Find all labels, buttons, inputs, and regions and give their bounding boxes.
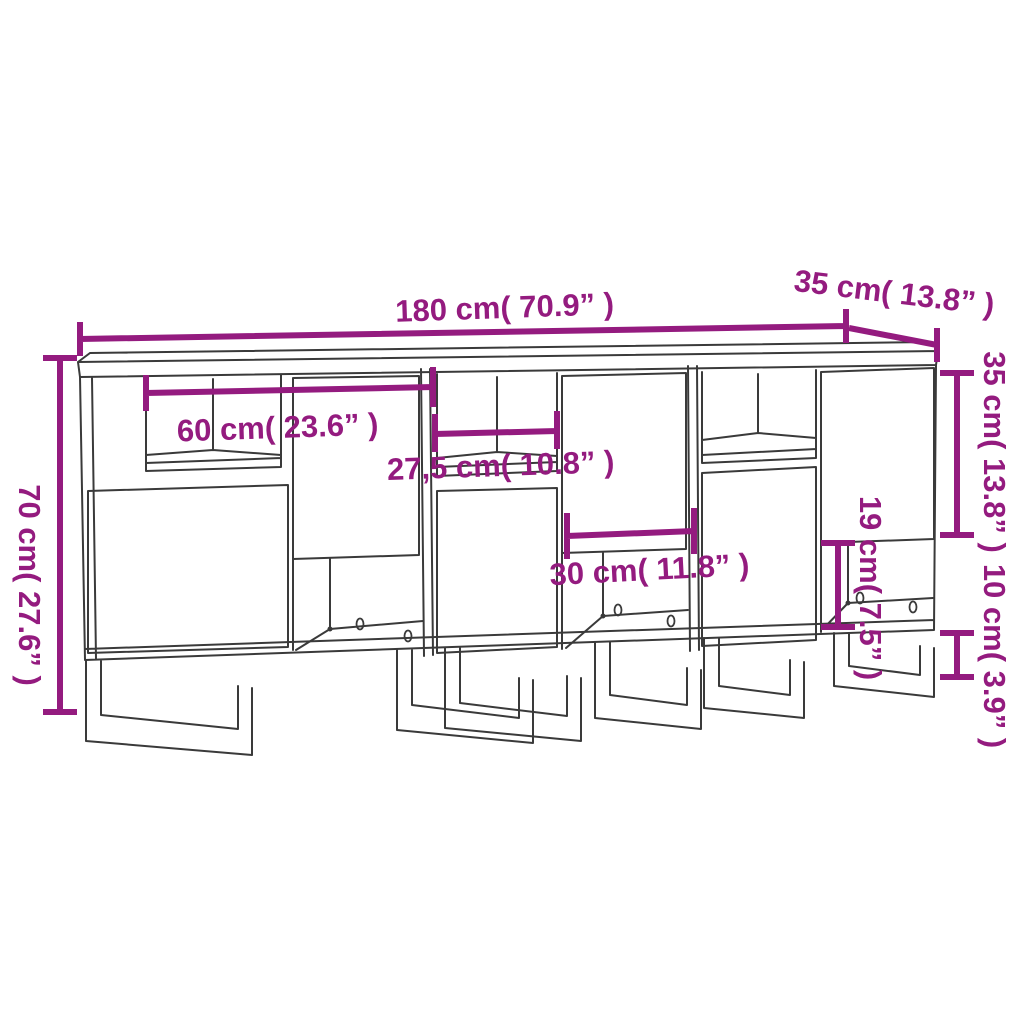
knob-hole: [405, 631, 412, 642]
leg-frame: [445, 648, 581, 741]
leg-frame: [704, 638, 804, 718]
dim-leg-height-label: 10 cm( 3.9” ): [977, 564, 1012, 748]
leg-frame: [397, 649, 533, 743]
unit-1-left-door: [88, 485, 288, 653]
dim-open-compartment-height: 19 cm( 7.5” ): [821, 496, 888, 680]
unit-2-left-door: [437, 488, 557, 653]
knob-hole: [357, 619, 364, 630]
carcass-edges: [80, 365, 936, 660]
dim-unit-inner-width: 60 cm( 23.6” ): [146, 367, 433, 449]
unit-1-open-compartment: [293, 558, 423, 650]
leg-frame: [86, 660, 252, 755]
sideboard-outline: [78, 342, 938, 755]
dim-leg-height: 10 cm( 3.9” ): [940, 564, 1012, 748]
dim-overall-height-label: 70 cm( 27.6” ): [12, 484, 47, 686]
unit-3: [702, 368, 934, 646]
dim-open-compartment-height-label: 19 cm( 7.5” ): [853, 496, 888, 680]
pin-dot: [846, 601, 851, 606]
knob-hole: [910, 602, 917, 613]
unit-2: [437, 373, 688, 653]
dim-niche-width-label: 27,5 cm( 10.8” ): [386, 444, 615, 487]
knob-hole: [615, 605, 622, 616]
dim-overall-height-line: [43, 358, 77, 712]
pin-dot: [601, 614, 606, 619]
dim-leg-height-line: [940, 633, 974, 677]
dim-top-depth: 35 cm( 13.8” ): [792, 263, 996, 362]
dim-overall-width-label: 180 cm( 70.9” ): [395, 286, 615, 329]
pin-dot: [328, 627, 333, 632]
dim-door-section-height-label: 35 cm( 13.8” ): [977, 351, 1012, 553]
knob-hole: [668, 616, 675, 627]
top-board: [78, 342, 938, 377]
dim-open-compartment-height-line: [821, 543, 855, 627]
dim-unit-inner-width-label: 60 cm( 23.6” ): [176, 406, 379, 448]
dim-door-section-height-line: [940, 373, 974, 535]
dim-top-depth-label: 35 cm( 13.8” ): [792, 263, 996, 322]
metal-legs: [86, 633, 934, 755]
dim-overall-height: 70 cm( 27.6” ): [12, 358, 77, 712]
dim-door-section-height: 35 cm( 13.8” ): [940, 351, 1012, 553]
dim-top-depth-line: [849, 328, 937, 362]
dim-open-compartment-width-label: 30 cm( 11.8” ): [549, 547, 750, 592]
leg-frame: [595, 642, 701, 729]
unit-3-niche: [702, 370, 816, 463]
furniture-dimension-diagram: 180 cm( 70.9” ) 35 cm( 13.8” ) 70 cm( 27…: [0, 0, 1024, 1024]
sideboard-line-drawing: 180 cm( 70.9” ) 35 cm( 13.8” ) 70 cm( 27…: [0, 0, 1024, 1024]
